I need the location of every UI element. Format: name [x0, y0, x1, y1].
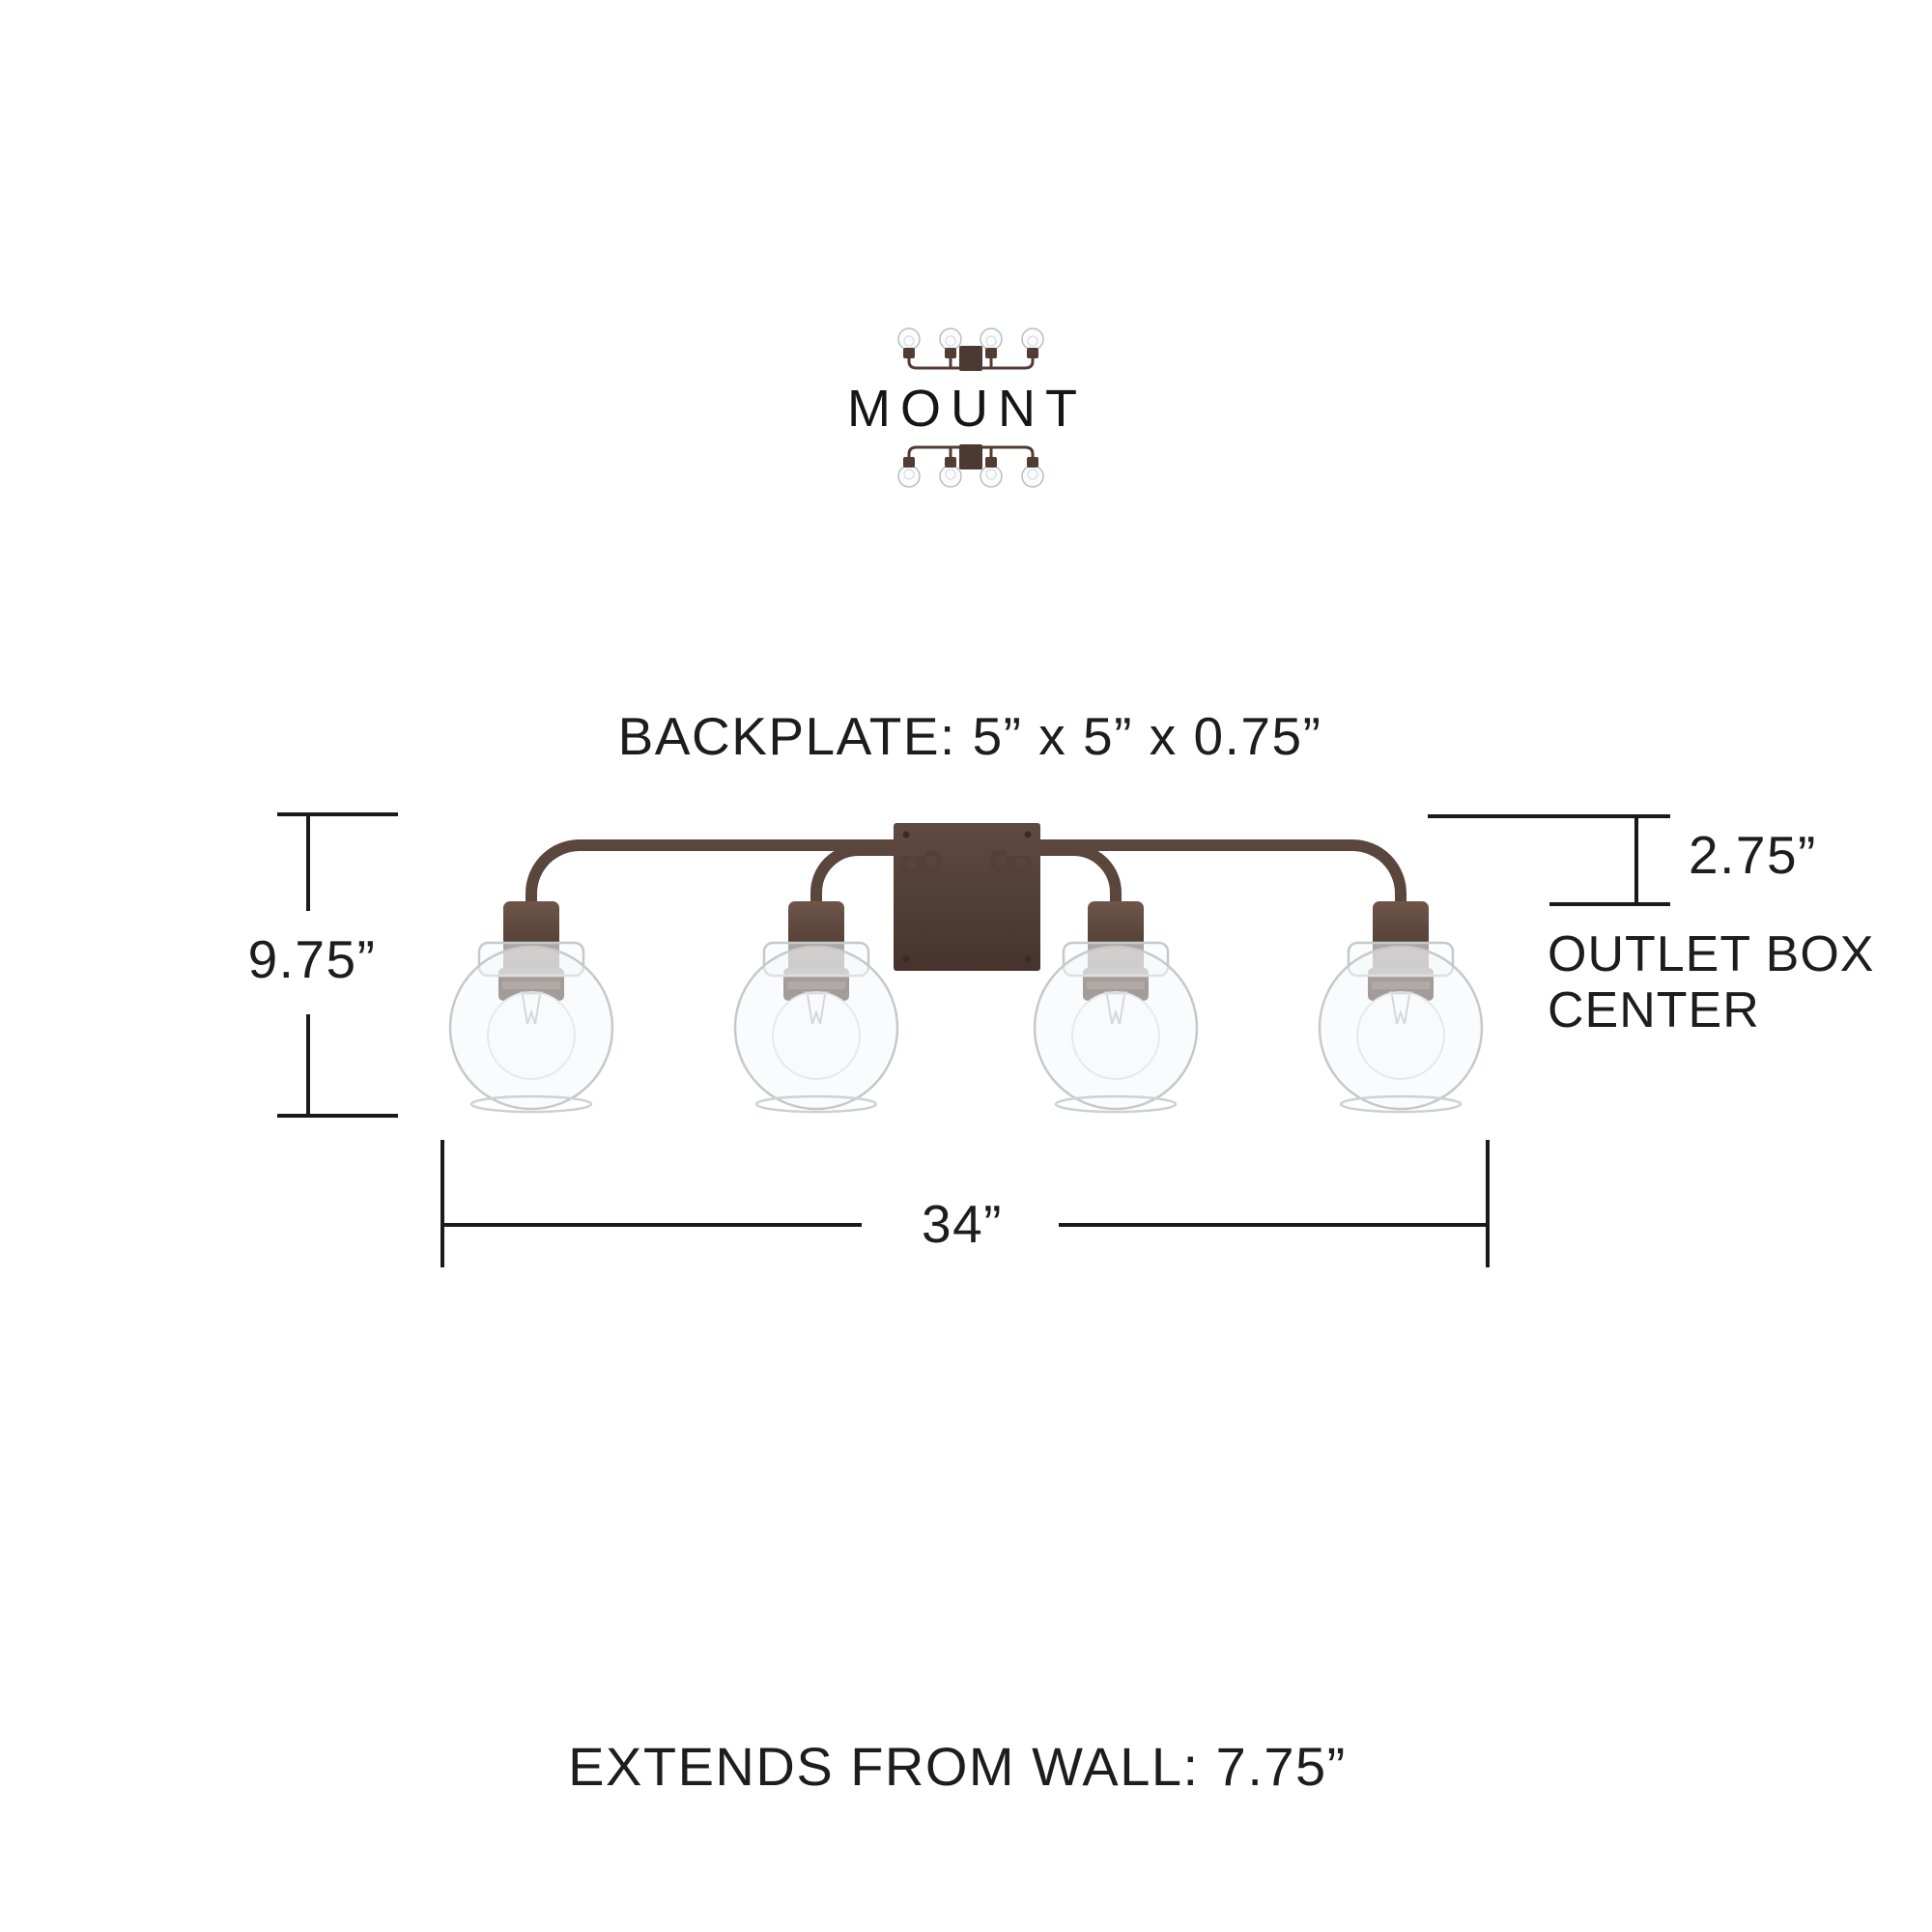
glass-globe-2 [735, 901, 897, 1112]
width-dim-right-tick [1486, 1140, 1490, 1267]
diagram-canvas: MOUNT BACKPLATE: 5” x 5” x 0.75” [0, 0, 1932, 1932]
mount-down-icon [898, 444, 1043, 487]
width-dim-line-right [1059, 1223, 1490, 1227]
glass-globe-1 [450, 901, 612, 1112]
glass-globe-4 [1320, 901, 1482, 1112]
width-dim-line-left [442, 1223, 862, 1227]
mount-label: MOUNT [847, 383, 1087, 435]
width-dim-label: 34” [922, 1198, 1003, 1251]
outlet-dim-vertical-line [1634, 814, 1638, 906]
height-dim-top-bar [277, 812, 398, 816]
backplate-spec-label: BACKPLATE: 5” x 5” x 0.75” [618, 710, 1322, 763]
outlet-offset-label: 2.75” [1689, 829, 1817, 882]
width-dim-left-tick [440, 1140, 444, 1267]
height-dim-bottom-bar [277, 1114, 398, 1118]
outlet-box-label-line2: CENTER [1548, 985, 1760, 1036]
outlet-dim-bottom-bar [1549, 902, 1670, 906]
extends-spec-label: EXTENDS FROM WALL: 7.75” [568, 1740, 1347, 1794]
height-dim-line-upper [306, 812, 310, 911]
fixture-illustration [406, 792, 1526, 1130]
mount-up-icon [898, 328, 1043, 371]
height-dim-label: 9.75” [248, 933, 377, 986]
glass-globe-3 [1035, 901, 1197, 1112]
outlet-box-label-line1: OUTLET BOX [1548, 929, 1874, 980]
height-dim-line-lower [306, 1014, 310, 1118]
